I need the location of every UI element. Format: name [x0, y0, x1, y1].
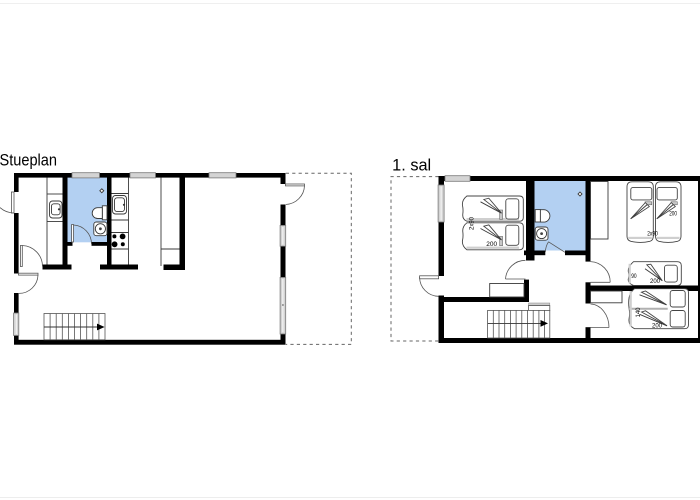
svg-text:200: 200	[669, 211, 677, 217]
svg-text:2x90: 2x90	[647, 231, 658, 237]
svg-text:200: 200	[652, 323, 663, 329]
svg-text:140: 140	[636, 307, 642, 318]
svg-text:200: 200	[486, 242, 498, 248]
svg-text:2x90: 2x90	[470, 216, 476, 230]
svg-text:Stueplan: Stueplan	[0, 152, 57, 170]
svg-text:200: 200	[650, 279, 661, 285]
svg-text:1. sal: 1. sal	[392, 156, 431, 174]
svg-text:90: 90	[631, 274, 637, 280]
